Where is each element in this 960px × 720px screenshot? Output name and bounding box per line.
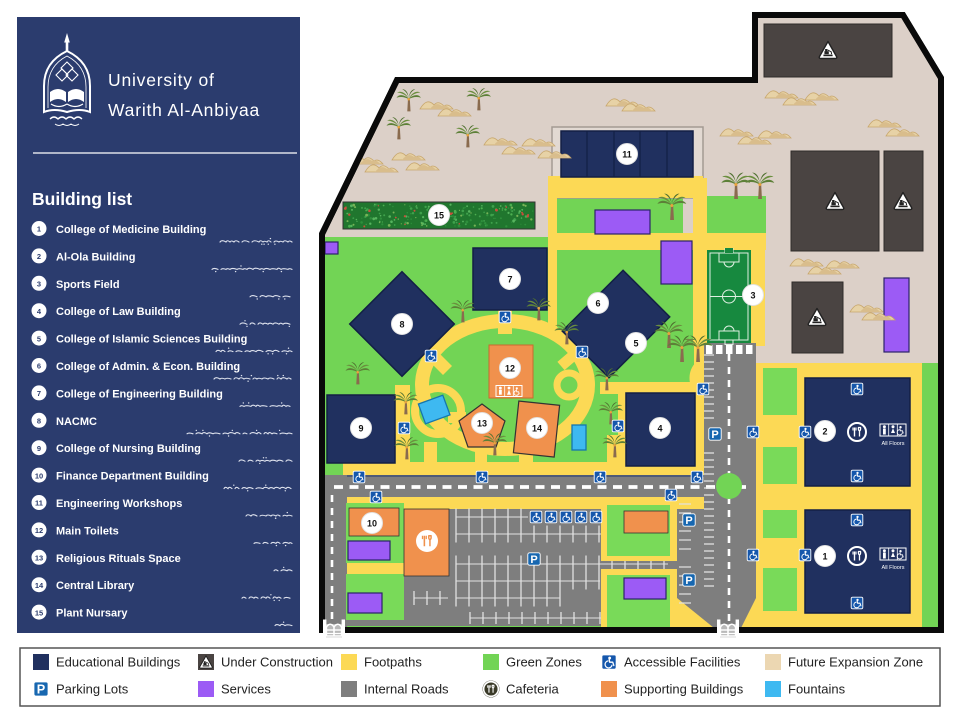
svg-text:Green Zones: Green Zones — [506, 655, 582, 670]
svg-text:9: 9 — [37, 444, 41, 453]
svg-text:6: 6 — [37, 362, 41, 371]
svg-text:8: 8 — [37, 417, 41, 426]
svg-text:10: 10 — [367, 519, 377, 529]
svg-text:5: 5 — [633, 339, 638, 349]
svg-text:All Floors: All Floors — [882, 565, 905, 571]
svg-text:11: 11 — [35, 499, 43, 508]
svg-text:Central Library: Central Library — [56, 580, 135, 592]
svg-text:1: 1 — [822, 552, 827, 562]
svg-text:Educational Buildings: Educational Buildings — [56, 655, 181, 670]
svg-text:12: 12 — [35, 526, 43, 535]
svg-text:Parking Lots: Parking Lots — [56, 682, 129, 697]
svg-text:2: 2 — [37, 252, 41, 261]
svg-text:Footpaths: Footpaths — [364, 655, 422, 670]
svg-text:Fountains: Fountains — [788, 682, 846, 697]
svg-text:9: 9 — [358, 424, 363, 434]
svg-text:Future Expansion Zone: Future Expansion Zone — [788, 655, 923, 670]
svg-text:6: 6 — [595, 299, 600, 309]
svg-text:NACMC: NACMC — [56, 416, 97, 428]
svg-text:3: 3 — [750, 291, 755, 301]
svg-text:Finance Department Building: Finance Department Building — [56, 471, 209, 483]
svg-text:College of Medicine Building: College of Medicine Building — [56, 224, 206, 236]
svg-text:Services: Services — [221, 682, 271, 697]
svg-text:5: 5 — [37, 334, 41, 343]
svg-text:Accessible Facilities: Accessible Facilities — [624, 655, 741, 670]
svg-text:11: 11 — [622, 150, 632, 160]
svg-text:1: 1 — [37, 225, 41, 234]
svg-text:Internal Roads: Internal Roads — [364, 682, 449, 697]
svg-text:College of Law Building: College of Law Building — [56, 306, 181, 318]
svg-text:Al-Ola Building: Al-Ola Building — [56, 251, 135, 263]
svg-text:Under Construction: Under Construction — [221, 655, 333, 670]
svg-text:8: 8 — [399, 320, 404, 330]
svg-text:College of Nursing Building: College of Nursing Building — [56, 443, 201, 455]
svg-text:4: 4 — [657, 424, 662, 434]
svg-text:3: 3 — [37, 280, 41, 289]
svg-text:7: 7 — [37, 389, 41, 398]
svg-text:College of Islamic Sciences Bu: College of Islamic Sciences Building — [56, 334, 247, 346]
svg-text:13: 13 — [477, 419, 487, 429]
svg-text:Main Toilets: Main Toilets — [56, 525, 119, 537]
svg-text:All Floors: All Floors — [882, 441, 905, 447]
svg-text:Engineering Workshops: Engineering Workshops — [56, 498, 182, 510]
svg-text:University of: University of — [108, 70, 215, 90]
svg-text:12: 12 — [505, 364, 515, 374]
svg-text:2: 2 — [822, 427, 827, 437]
svg-text:14: 14 — [35, 581, 44, 590]
svg-text:Supporting Buildings: Supporting Buildings — [624, 682, 744, 697]
svg-text:13: 13 — [35, 554, 43, 563]
svg-text:10: 10 — [35, 471, 43, 480]
svg-text:15: 15 — [35, 608, 43, 617]
svg-text:14: 14 — [532, 424, 542, 434]
svg-text:Religious Rituals Space: Religious Rituals Space — [56, 553, 181, 565]
svg-text:College of Admin. & Econ. Buil: College of Admin. & Econ. Building — [56, 361, 240, 373]
svg-text:7: 7 — [507, 275, 512, 285]
svg-text:Warith Al-Anbiyaa: Warith Al-Anbiyaa — [108, 100, 260, 120]
svg-text:College of Engineering Buildin: College of Engineering Building — [56, 388, 223, 400]
svg-text:Sports Field: Sports Field — [56, 279, 120, 291]
svg-text:Cafeteria: Cafeteria — [506, 682, 560, 697]
svg-text:Plant Nursary: Plant Nursary — [56, 608, 128, 620]
svg-text:15: 15 — [434, 211, 444, 221]
svg-text:Building list: Building list — [32, 189, 132, 209]
